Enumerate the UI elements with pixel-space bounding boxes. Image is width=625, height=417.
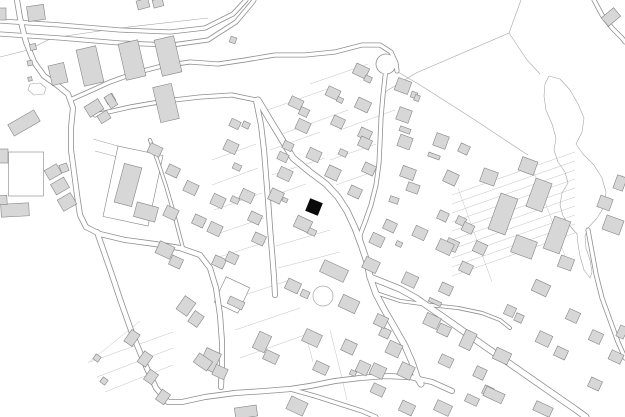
building-footprint bbox=[306, 147, 322, 162]
building-footprint bbox=[514, 313, 525, 324]
parcel-line bbox=[235, 308, 300, 330]
road-lane-east-casing bbox=[376, 293, 510, 328]
building-footprint bbox=[531, 279, 551, 297]
building-footprint bbox=[300, 289, 310, 299]
building-footprint bbox=[601, 8, 620, 27]
building-footprint bbox=[398, 400, 415, 416]
building-footprint bbox=[406, 182, 420, 195]
building-footprint bbox=[503, 304, 516, 317]
building-footprint bbox=[464, 394, 479, 407]
building-footprint bbox=[188, 311, 204, 328]
building-footprint bbox=[533, 401, 554, 417]
field-boundary-line bbox=[509, 0, 521, 33]
building-footprint bbox=[341, 339, 358, 355]
building-footprint bbox=[553, 346, 568, 360]
building-footprint bbox=[347, 185, 362, 199]
building-footprint bbox=[428, 152, 441, 160]
building-footprint bbox=[252, 331, 271, 353]
building-footprint bbox=[100, 377, 108, 385]
building-footprint bbox=[438, 282, 453, 296]
building-footprint bbox=[153, 83, 180, 122]
building-footprint bbox=[325, 165, 342, 181]
building-footprint bbox=[400, 165, 417, 180]
building-footprint bbox=[354, 97, 371, 113]
field-boundary-line bbox=[398, 72, 528, 155]
highlighted-site-building bbox=[306, 199, 323, 216]
building-footprint bbox=[357, 136, 372, 150]
building-footprint bbox=[361, 162, 376, 176]
building-footprint bbox=[8, 110, 40, 136]
building-footprint bbox=[433, 133, 450, 150]
building-footprint bbox=[176, 296, 196, 317]
building-footprint bbox=[330, 115, 345, 129]
building-footprint bbox=[29, 43, 36, 50]
building-footprint bbox=[543, 216, 571, 254]
building-footprint bbox=[1, 203, 30, 217]
building-footprint bbox=[183, 180, 199, 195]
building-footprint bbox=[207, 221, 223, 236]
building-footprint bbox=[136, 0, 150, 10]
building-footprint bbox=[284, 278, 301, 294]
building-footprint bbox=[191, 214, 206, 228]
building-footprint bbox=[389, 196, 400, 205]
field-boundary-line bbox=[509, 33, 540, 74]
building-footprint bbox=[313, 361, 330, 376]
building-footprint bbox=[338, 149, 348, 158]
building-footprint bbox=[302, 329, 323, 348]
parcel-line bbox=[212, 168, 258, 185]
building-footprint bbox=[242, 121, 251, 129]
building-footprint bbox=[0, 195, 7, 204]
building-footprint bbox=[526, 178, 552, 212]
building-footprint bbox=[319, 260, 348, 283]
building-footprint bbox=[438, 354, 454, 369]
building-footprint bbox=[535, 331, 553, 348]
building-footprint bbox=[443, 170, 460, 186]
building-footprint bbox=[152, 0, 164, 8]
building-footprint bbox=[282, 197, 288, 203]
building-footprint bbox=[472, 240, 488, 255]
outlined-parcel bbox=[9, 152, 44, 196]
building-footprint bbox=[251, 232, 266, 246]
building-footprint bbox=[395, 240, 403, 247]
parcel-line bbox=[105, 365, 173, 392]
building-footprint bbox=[76, 46, 104, 87]
building-footprint bbox=[473, 366, 488, 381]
building-footprint bbox=[588, 329, 604, 344]
building-footprint bbox=[488, 193, 518, 235]
building-footprint bbox=[0, 149, 8, 163]
building-footprint bbox=[338, 294, 360, 313]
building-footprint bbox=[28, 77, 33, 82]
building-footprint bbox=[230, 196, 240, 205]
building-footprint bbox=[263, 350, 280, 365]
map-canvas bbox=[0, 0, 625, 417]
building-footprint bbox=[379, 327, 392, 339]
building-footprint bbox=[458, 143, 471, 155]
parcel-line bbox=[330, 330, 347, 400]
building-footprint bbox=[165, 164, 180, 178]
building-footprint bbox=[412, 225, 428, 240]
building-footprint bbox=[480, 168, 499, 186]
building-footprint bbox=[613, 175, 625, 192]
building-footprint bbox=[399, 126, 411, 134]
building-footprint bbox=[565, 308, 581, 323]
building-footprint bbox=[518, 157, 538, 176]
building-footprint bbox=[401, 272, 419, 289]
building-footprint bbox=[93, 354, 101, 362]
building-footprint bbox=[229, 36, 237, 44]
building-footprint bbox=[396, 107, 413, 124]
building-footprint bbox=[211, 255, 226, 269]
building-footprint bbox=[433, 400, 452, 417]
building-footprint bbox=[277, 166, 293, 181]
building-footprint bbox=[597, 195, 613, 211]
building-footprint bbox=[355, 360, 371, 376]
building-footprint bbox=[225, 251, 239, 265]
building-footprint bbox=[382, 219, 397, 233]
building-footprint bbox=[370, 383, 386, 398]
building-footprint bbox=[232, 163, 242, 172]
road-industrial-link-casing bbox=[70, 45, 397, 100]
parcel-line bbox=[97, 348, 173, 377]
building-footprint bbox=[27, 4, 46, 21]
parcel-line bbox=[340, 110, 395, 130]
site-plan-map bbox=[0, 0, 625, 417]
road-industrial-link bbox=[70, 45, 397, 100]
building-footprint bbox=[295, 118, 311, 133]
building-footprint bbox=[286, 396, 308, 416]
building-footprint bbox=[239, 188, 255, 203]
building-footprint bbox=[587, 377, 602, 391]
building-footprint bbox=[57, 193, 76, 212]
building-footprint bbox=[27, 60, 33, 66]
building-footprint bbox=[394, 77, 412, 94]
building-footprint bbox=[0, 8, 6, 20]
building-footprint bbox=[369, 232, 385, 247]
building-footprint bbox=[229, 118, 241, 129]
building-footprint bbox=[104, 93, 118, 108]
building-footprint bbox=[557, 255, 574, 271]
building-footprint bbox=[437, 210, 450, 222]
building-footprint bbox=[234, 405, 257, 417]
terrain-outline bbox=[28, 83, 46, 95]
round-feature bbox=[313, 286, 333, 306]
parcel-line bbox=[276, 230, 330, 246]
building-footprint bbox=[602, 215, 624, 235]
building-footprint bbox=[223, 139, 239, 154]
building-footprint bbox=[51, 177, 70, 195]
building-footprint bbox=[397, 134, 413, 150]
